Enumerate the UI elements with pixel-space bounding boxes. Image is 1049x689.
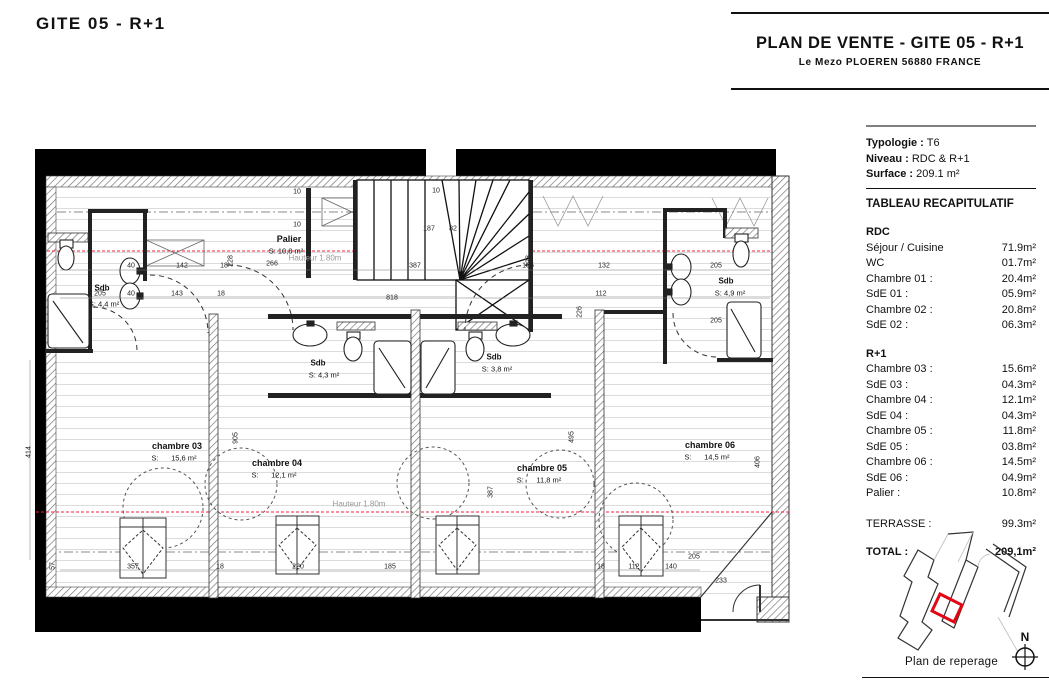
plan-de-vente-sheet: GITE 05 - R+1 PLAN DE VENTE - GITE 05 - …: [0, 0, 1049, 689]
divider: [866, 125, 1036, 127]
dimension: 57: [50, 562, 57, 570]
room-label-chambre-05: chambre 05: [517, 463, 567, 473]
divider: [866, 188, 1036, 189]
dimension: 10: [293, 189, 301, 196]
room-area-sdb-left: S: 4,4 m²: [89, 300, 119, 309]
dimension: 387: [409, 263, 421, 270]
room-area-sdb-cl: S: 4,3 m²: [309, 371, 339, 380]
dimension: 112: [595, 291, 606, 298]
dimension: 205: [688, 554, 700, 561]
table-row: SdE 06 :04.9m²: [866, 471, 1036, 487]
dimension: 228: [526, 255, 533, 267]
table-row: SdE 01 :05.9m²: [866, 287, 1036, 303]
dimension: 220: [292, 564, 304, 571]
table-title: TABLEAU RECAPITULATIF: [866, 197, 1036, 213]
dimension: 233: [715, 578, 727, 585]
table-row: SdE 02 :06.3m²: [866, 318, 1036, 334]
room-area-chambre-03: S: 15,6 m²: [151, 454, 196, 463]
niveau-value: RDC & R+1: [912, 153, 970, 165]
dimension: 112: [628, 564, 639, 571]
plan-title: PLAN DE VENTE - GITE 05 - R+1: [756, 34, 1024, 53]
dimension: 10: [293, 222, 301, 229]
dimension: 495: [569, 431, 576, 443]
niveau-label: Niveau :: [866, 153, 909, 165]
page-title: GITE 05 - R+1: [36, 14, 166, 34]
table-row: Chambre 01 :20.4m²: [866, 272, 1036, 288]
dimension: 40: [127, 263, 135, 270]
dimension: 132: [598, 263, 610, 270]
dimension: 205: [710, 318, 722, 325]
table-row: Séjour / Cuisine71.9m²: [866, 241, 1036, 257]
table-row: Chambre 06 :14.5m²: [866, 455, 1036, 471]
dimension: 143: [171, 291, 183, 298]
room-label-sdb-cl: Sdb: [310, 359, 325, 368]
table-row: Chambre 02 :20.8m²: [866, 303, 1036, 319]
table-row: SdE 03 :04.3m²: [866, 378, 1036, 394]
section-r1: R+1: [866, 347, 1036, 363]
dimension: 40: [127, 291, 135, 298]
dimension: 18: [217, 291, 225, 298]
room-label-chambre-04: chambre 04: [252, 458, 302, 468]
table-row: Palier :10.8m²: [866, 486, 1036, 502]
dimension: 18: [597, 564, 605, 571]
dimension: 205: [94, 291, 106, 298]
dimension: 185: [384, 564, 396, 571]
dimension: 142: [176, 263, 188, 270]
room-label-chambre-03: chambre 03: [152, 441, 202, 451]
north-compass: N: [1012, 630, 1038, 673]
room-label-palier: Palier: [277, 234, 302, 244]
surface-label: Surface :: [866, 168, 913, 180]
table-row: SdE 05 :03.8m²: [866, 440, 1036, 456]
dimension: 414: [26, 446, 33, 458]
height-note: Hauteur 1.80m: [333, 500, 386, 509]
typologie-value: T6: [927, 137, 940, 149]
dimension: 205: [710, 263, 722, 270]
table-row: SdE 04 :04.3m²: [866, 409, 1036, 425]
dimension: 406: [755, 456, 762, 468]
room-label-sdb-right: Sdb: [718, 277, 733, 286]
room-label-chambre-06: chambre 06: [685, 440, 735, 450]
floor-plan-drawing: [0, 0, 820, 689]
dimension: 387: [488, 486, 495, 498]
room-area-sdb-cr: S: 3,8 m²: [482, 365, 512, 374]
plan-subtitle: Le Mezo PLOEREN 56880 FRANCE: [799, 57, 981, 68]
section-rdc: RDC: [866, 225, 1036, 241]
room-area-chambre-06: S: 14,5 m²: [684, 453, 729, 462]
height-note: Hauteur 1.80m: [289, 254, 342, 263]
table-row: Chambre 03 :15.6m²: [866, 362, 1036, 378]
dimension: 10: [432, 188, 440, 195]
dimension: 18: [216, 564, 224, 571]
dimension: 187: [423, 226, 435, 233]
typologie-label: Typologie :: [866, 137, 924, 149]
dimension: 266: [266, 261, 278, 268]
table-row: Chambre 05 :11.8m²: [866, 424, 1036, 440]
dimension: 226: [577, 306, 584, 318]
dimension: 357: [127, 564, 139, 571]
dimension: 228: [228, 255, 235, 267]
north-label: N: [1012, 630, 1038, 644]
table-row: WC01.7m²: [866, 256, 1036, 272]
recap-panel: Typologie : T6 Niveau : RDC & R+1 Surfac…: [866, 125, 1036, 561]
dimension: 82: [449, 226, 457, 233]
table-row: Chambre 04 :12.1m²: [866, 393, 1036, 409]
dimension: 140: [665, 564, 677, 571]
room-area-sdb-right: S: 4,9 m²: [715, 289, 745, 298]
dimension: 905: [233, 432, 240, 444]
room-label-sdb-cr: Sdb: [486, 353, 501, 362]
dimension: 818: [386, 295, 398, 302]
title-block: PLAN DE VENTE - GITE 05 - R+1 Le Mezo PL…: [731, 12, 1049, 90]
room-area-chambre-04: S: 12,1 m²: [251, 471, 296, 480]
compass-icon: [1012, 644, 1038, 670]
surface-value: 209.1 m²: [916, 168, 959, 180]
room-area-chambre-05: S: 11,8 m²: [517, 476, 561, 485]
reperage-caption: Plan de reperage: [905, 656, 998, 668]
divider: [862, 677, 1049, 678]
